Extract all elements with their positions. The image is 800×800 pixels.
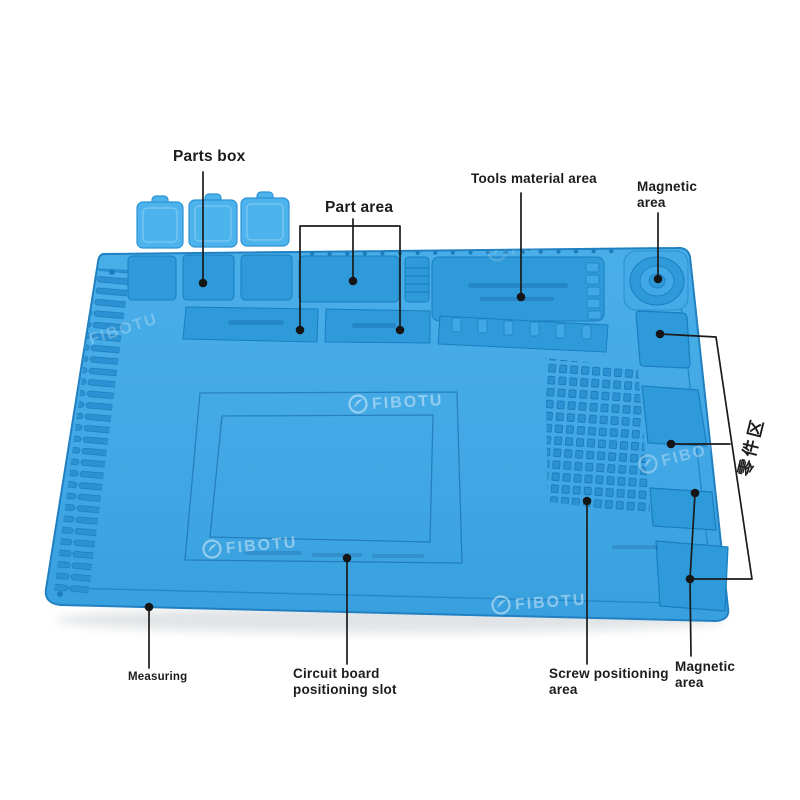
label-circuit-board-positioning-slot: Circuit board positioning slot (293, 666, 419, 698)
label-magnetic-area-bottom: Magnetic area (675, 659, 741, 691)
screw-positioning-grid (545, 358, 650, 514)
part-area-top-compartment (299, 256, 399, 302)
callout-dot (145, 603, 154, 612)
right-slot (650, 488, 716, 530)
callout-dot (583, 497, 592, 506)
callout-dot (517, 293, 526, 302)
tools-material-area-tray (432, 257, 604, 321)
label-magnetic-area-top: Magnetic area (637, 179, 701, 211)
corner-hole (57, 591, 63, 597)
callout-dot (691, 489, 700, 498)
callout-dot (654, 275, 663, 284)
callout-dot (396, 326, 405, 335)
label-measuring: Measuring (128, 671, 187, 685)
callout-dot (199, 279, 208, 288)
label-parts-box: Parts box (173, 148, 245, 166)
callout-dot (667, 440, 676, 449)
annotated-product-diagram: FIBOTU FIBOTU FIBOTU FIBOTU FIBOTU FIBOT… (0, 0, 800, 800)
callout-dot (686, 575, 695, 584)
right-slot (636, 311, 690, 368)
label-tools-material-area: Tools material area (471, 171, 597, 187)
callout-dot (349, 277, 358, 286)
callout-dot (656, 330, 665, 339)
corner-hole (109, 269, 115, 275)
parts-box-lids (137, 192, 289, 248)
callout-dot (296, 326, 305, 335)
callout-dot (343, 554, 352, 563)
label-screw-positioning-area: Screw positioning area (549, 666, 669, 698)
label-part-area: Part area (325, 199, 393, 217)
parts-box-compartments (128, 255, 429, 302)
right-slot (642, 386, 707, 446)
